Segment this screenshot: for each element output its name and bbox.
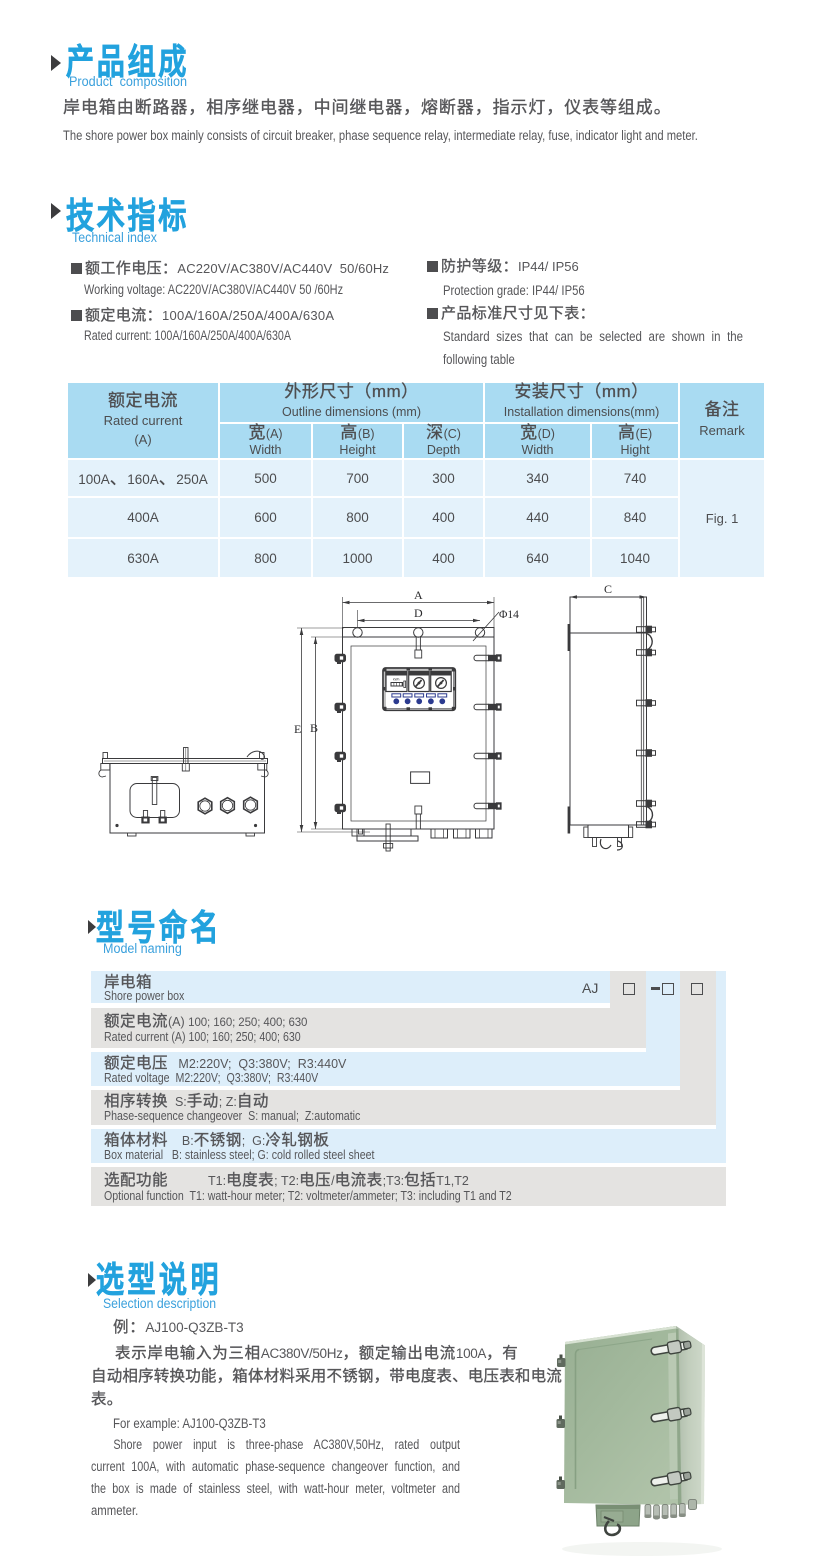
svg-text:B: B	[310, 721, 318, 735]
svg-text:A: A	[414, 588, 423, 602]
svg-text:C: C	[604, 585, 612, 596]
svg-text:D: D	[414, 606, 423, 620]
svg-text:E: E	[294, 722, 301, 736]
svg-text:kWh: kWh	[393, 678, 400, 682]
svg-text:Φ14: Φ14	[499, 609, 519, 621]
